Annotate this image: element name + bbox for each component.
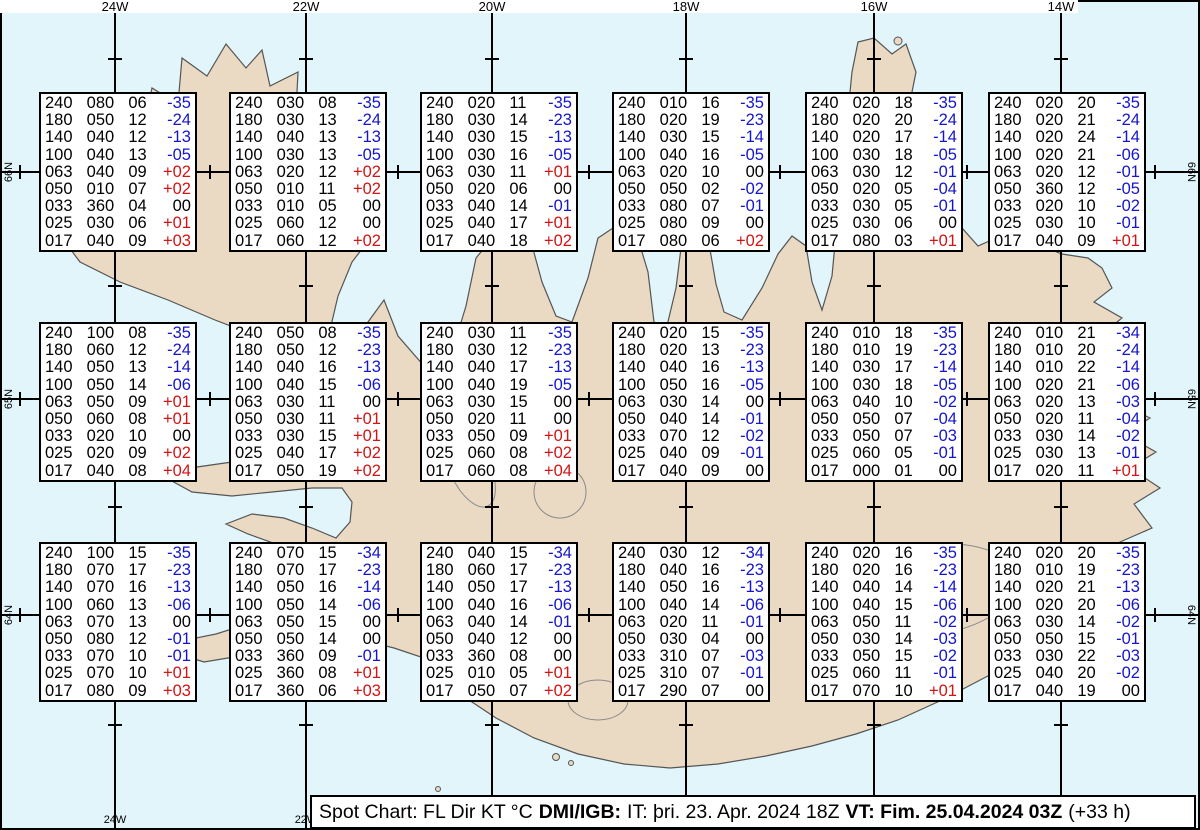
level-row: 18003014-23 xyxy=(426,112,572,129)
flight-level: 180 xyxy=(235,342,266,359)
flight-level: 100 xyxy=(235,597,266,614)
wind-kt: 17 xyxy=(509,579,530,596)
flight-level: 063 xyxy=(426,164,457,181)
wind-kt: 07 xyxy=(701,665,722,682)
temp-c: -01 xyxy=(926,164,957,181)
level-row: 05004014-01 xyxy=(618,411,764,428)
flight-level: 063 xyxy=(235,614,266,631)
flight-level: 025 xyxy=(811,665,842,682)
wind-dir: 050 xyxy=(277,597,308,614)
temp-c: -06 xyxy=(350,377,381,394)
level-row: 02504020-02 xyxy=(994,665,1140,682)
flight-level: 140 xyxy=(618,129,649,146)
level-row: 18007017-23 xyxy=(45,562,191,579)
level-row: 02506005-01 xyxy=(811,445,957,462)
wind-kt: 14 xyxy=(318,631,339,648)
level-row: 06302013-03 xyxy=(994,394,1140,411)
station-box: 24002015-3518002013-2314004016-131000501… xyxy=(612,322,770,482)
level-row: 01705007+02 xyxy=(426,683,572,700)
flight-level: 140 xyxy=(426,579,457,596)
wind-dir: 010 xyxy=(1036,359,1067,376)
wind-kt: 06 xyxy=(894,215,915,232)
level-row: 18005012-24 xyxy=(45,112,191,129)
station-box: 24008006-3518005012-2414004012-131000401… xyxy=(39,92,197,252)
level-row: 06304009+02 xyxy=(45,164,191,181)
temp-c: +02 xyxy=(350,463,381,480)
temp-c: -24 xyxy=(160,342,191,359)
wind-dir: 030 xyxy=(1036,614,1067,631)
level-row: 18002021-24 xyxy=(994,112,1140,129)
level-row: 14004014-14 xyxy=(811,579,957,596)
flight-level: 063 xyxy=(235,394,266,411)
wind-kt: 20 xyxy=(894,112,915,129)
level-row: 24002016-35 xyxy=(811,545,957,562)
level-row: 0170401900 xyxy=(994,683,1140,700)
flight-level: 100 xyxy=(811,377,842,394)
level-row: 10002021-06 xyxy=(994,377,1140,394)
temp-c: -01 xyxy=(733,411,764,428)
lon-label-top-22W: 22W xyxy=(288,0,324,13)
temp-c: -04 xyxy=(1109,411,1140,428)
temp-c: -14 xyxy=(350,579,381,596)
flight-level: 180 xyxy=(811,342,842,359)
footer-org: DMI/IGB: xyxy=(539,801,621,824)
flight-level: 025 xyxy=(426,445,457,462)
wind-kt: 15 xyxy=(318,614,339,631)
flight-level: 100 xyxy=(235,147,266,164)
level-row: 02501005+01 xyxy=(426,665,572,682)
temp-c: -02 xyxy=(733,181,764,198)
level-row: 24002018-35 xyxy=(811,95,957,112)
level-row: 14004016-13 xyxy=(235,359,381,376)
wind-dir: 030 xyxy=(277,394,308,411)
wind-kt: 14 xyxy=(701,394,722,411)
temp-c: +03 xyxy=(160,233,191,250)
wind-kt: 19 xyxy=(894,342,915,359)
wind-dir: 020 xyxy=(1036,394,1067,411)
level-row: 10005014-06 xyxy=(235,597,381,614)
wind-dir: 040 xyxy=(87,129,118,146)
flight-level: 240 xyxy=(45,325,76,342)
wind-kt: 12 xyxy=(128,112,149,129)
flight-level: 240 xyxy=(426,95,457,112)
wind-dir: 040 xyxy=(660,445,691,462)
wind-dir: 080 xyxy=(660,198,691,215)
level-row: 18001019-23 xyxy=(811,342,957,359)
wind-kt: 14 xyxy=(128,377,149,394)
temp-c: -14 xyxy=(1109,129,1140,146)
temp-c: -34 xyxy=(733,545,764,562)
temp-c: -02 xyxy=(926,394,957,411)
wind-kt: 07 xyxy=(894,411,915,428)
wind-dir: 050 xyxy=(853,648,884,665)
flight-level: 017 xyxy=(426,463,457,480)
temp-c: 00 xyxy=(733,394,764,411)
wind-kt: 05 xyxy=(894,181,915,198)
flight-level: 240 xyxy=(811,325,842,342)
wind-dir: 000 xyxy=(853,463,884,480)
flight-level: 025 xyxy=(618,215,649,232)
flight-level: 240 xyxy=(618,325,649,342)
level-row: 02531007-01 xyxy=(618,665,764,682)
lat-label-right-66N: 66N xyxy=(1183,157,1199,187)
wind-dir: 030 xyxy=(660,631,691,648)
level-row: 10003013-05 xyxy=(235,147,381,164)
temp-c: -06 xyxy=(926,597,957,614)
level-row: 05003014-03 xyxy=(811,631,957,648)
wind-kt: 13 xyxy=(701,342,722,359)
wind-kt: 12 xyxy=(701,428,722,445)
wind-dir: 030 xyxy=(468,147,499,164)
flight-level: 050 xyxy=(994,181,1025,198)
wind-dir: 050 xyxy=(468,428,499,445)
level-row: 06303011+01 xyxy=(426,164,572,181)
temp-c: -01 xyxy=(160,631,191,648)
temp-c: -01 xyxy=(733,614,764,631)
wind-dir: 020 xyxy=(853,129,884,146)
wind-dir: 020 xyxy=(660,164,691,181)
temp-c: -01 xyxy=(1109,445,1140,462)
wind-dir: 020 xyxy=(468,181,499,198)
level-row: 0500201100 xyxy=(426,411,572,428)
wind-dir: 070 xyxy=(87,648,118,665)
wind-dir: 310 xyxy=(660,665,691,682)
wind-kt: 09 xyxy=(318,648,339,665)
wind-dir: 050 xyxy=(277,325,308,342)
flight-level: 140 xyxy=(811,579,842,596)
level-row: 24008006-35 xyxy=(45,95,191,112)
station-box: 24001016-3518002019-2314003015-141000401… xyxy=(612,92,770,252)
temp-c: -13 xyxy=(350,359,381,376)
flight-level: 100 xyxy=(618,147,649,164)
flight-level: 025 xyxy=(235,665,266,682)
temp-c: -05 xyxy=(926,147,957,164)
temp-c: -35 xyxy=(733,95,764,112)
temp-c: -14 xyxy=(1109,359,1140,376)
wind-dir: 050 xyxy=(277,614,308,631)
level-row: 06302011-01 xyxy=(618,614,764,631)
wind-dir: 040 xyxy=(660,597,691,614)
temp-c: -13 xyxy=(160,579,191,596)
wind-dir: 040 xyxy=(87,147,118,164)
wind-dir: 310 xyxy=(660,648,691,665)
level-row: 18006017-23 xyxy=(426,562,572,579)
footer-init-time: IT: þri. 23. Apr. 2024 18Z xyxy=(627,801,839,824)
temp-c: -01 xyxy=(350,648,381,665)
wind-dir: 060 xyxy=(277,215,308,232)
wind-kt: 14 xyxy=(509,614,530,631)
temp-c: -34 xyxy=(350,545,381,562)
flight-level: 017 xyxy=(811,233,842,250)
temp-c: -13 xyxy=(733,579,764,596)
temp-c: -35 xyxy=(1109,95,1140,112)
level-row: 0630301100 xyxy=(235,394,381,411)
temp-c: -35 xyxy=(160,325,191,342)
temp-c: +01 xyxy=(350,428,381,445)
wind-dir: 050 xyxy=(277,631,308,648)
level-row: 24003011-35 xyxy=(426,325,572,342)
level-row: 10004015-06 xyxy=(811,597,957,614)
wind-kt: 16 xyxy=(701,579,722,596)
wind-kt: 05 xyxy=(318,198,339,215)
level-row: 24004015-34 xyxy=(426,545,572,562)
flight-level: 140 xyxy=(235,579,266,596)
wind-dir: 030 xyxy=(468,342,499,359)
wind-dir: 010 xyxy=(277,198,308,215)
wind-kt: 08 xyxy=(128,325,149,342)
footer-info-bar: Spot Chart: FL Dir KT °C DMI/IGB: IT: þr… xyxy=(310,795,1196,829)
wind-kt: 09 xyxy=(128,164,149,181)
wind-dir: 050 xyxy=(660,579,691,596)
top-label-strip xyxy=(0,0,1078,13)
temp-c: -23 xyxy=(160,562,191,579)
flight-level: 140 xyxy=(994,359,1025,376)
wind-kt: 17 xyxy=(318,445,339,462)
wind-dir: 080 xyxy=(87,95,118,112)
temp-c: -35 xyxy=(160,545,191,562)
level-row: 03336009-01 xyxy=(235,648,381,665)
level-row: 03305007-03 xyxy=(811,428,957,445)
temp-c: 00 xyxy=(160,614,191,631)
temp-c: -01 xyxy=(926,665,957,682)
flight-level: 140 xyxy=(618,579,649,596)
flight-level: 050 xyxy=(426,631,457,648)
flight-level: 180 xyxy=(426,342,457,359)
level-row: 14005017-13 xyxy=(426,579,572,596)
wind-dir: 360 xyxy=(1036,181,1067,198)
flight-level: 240 xyxy=(45,545,76,562)
temp-c: +01 xyxy=(926,233,957,250)
level-row: 06304014-01 xyxy=(426,614,572,631)
flight-level: 017 xyxy=(994,233,1025,250)
temp-c: 00 xyxy=(926,215,957,232)
wind-kt: 19 xyxy=(701,112,722,129)
temp-c: -23 xyxy=(350,342,381,359)
wind-kt: 18 xyxy=(894,95,915,112)
level-row: 18002013-23 xyxy=(618,342,764,359)
wind-kt: 11 xyxy=(318,181,339,198)
wind-dir: 030 xyxy=(277,112,308,129)
level-row: 18003013-24 xyxy=(235,112,381,129)
wind-kt: 15 xyxy=(318,428,339,445)
wind-kt: 14 xyxy=(318,597,339,614)
wind-dir: 020 xyxy=(87,428,118,445)
temp-c: +01 xyxy=(160,411,191,428)
temp-c: -01 xyxy=(926,198,957,215)
level-row: 05005015-01 xyxy=(994,631,1140,648)
footer-chart-type: Spot Chart: FL Dir KT °C xyxy=(319,801,533,824)
wind-kt: 16 xyxy=(894,562,915,579)
wind-dir: 100 xyxy=(87,545,118,562)
flight-level: 025 xyxy=(811,445,842,462)
wind-kt: 10 xyxy=(1077,215,1098,232)
wind-dir: 030 xyxy=(277,147,308,164)
temp-c: +01 xyxy=(1109,463,1140,480)
level-row: 10005014-06 xyxy=(45,377,191,394)
temp-c: 00 xyxy=(160,198,191,215)
level-row: 0333600400 xyxy=(45,198,191,215)
wind-kt: 10 xyxy=(128,648,149,665)
level-row: 01704018+02 xyxy=(426,233,572,250)
wind-kt: 14 xyxy=(894,579,915,596)
wind-dir: 040 xyxy=(468,597,499,614)
temp-c: +02 xyxy=(541,683,572,700)
flight-level: 180 xyxy=(618,112,649,129)
level-row: 03303022-03 xyxy=(994,648,1140,665)
level-row: 18002016-23 xyxy=(811,562,957,579)
temp-c: -06 xyxy=(160,377,191,394)
temp-c: -06 xyxy=(541,597,572,614)
wind-kt: 13 xyxy=(318,129,339,146)
flight-level: 063 xyxy=(426,614,457,631)
temp-c: -05 xyxy=(541,147,572,164)
flight-level: 033 xyxy=(994,648,1025,665)
flight-level: 033 xyxy=(618,198,649,215)
wind-dir: 010 xyxy=(1036,342,1067,359)
temp-c: -35 xyxy=(926,95,957,112)
wind-dir: 070 xyxy=(853,683,884,700)
wind-dir: 050 xyxy=(277,463,308,480)
level-row: 14005013-14 xyxy=(45,359,191,376)
wind-kt: 09 xyxy=(701,463,722,480)
wind-dir: 020 xyxy=(1036,579,1067,596)
flight-level: 240 xyxy=(235,325,266,342)
wind-dir: 030 xyxy=(660,394,691,411)
temp-c: -03 xyxy=(733,648,764,665)
flight-level: 180 xyxy=(811,562,842,579)
temp-c: -06 xyxy=(350,597,381,614)
wind-kt: 16 xyxy=(509,147,530,164)
wind-kt: 09 xyxy=(509,428,530,445)
temp-c: +01 xyxy=(1109,233,1140,250)
temp-c: -24 xyxy=(350,112,381,129)
wind-kt: 14 xyxy=(509,112,530,129)
wind-kt: 17 xyxy=(128,562,149,579)
flight-level: 033 xyxy=(994,198,1025,215)
wind-kt: 05 xyxy=(509,665,530,682)
level-row: 10004016-06 xyxy=(426,597,572,614)
wind-dir: 040 xyxy=(660,463,691,480)
wind-kt: 14 xyxy=(894,631,915,648)
lat-label-right-65N: 65N xyxy=(1183,384,1199,414)
wind-dir: 030 xyxy=(87,215,118,232)
level-row: 24007015-34 xyxy=(235,545,381,562)
wind-kt: 15 xyxy=(318,545,339,562)
station-box: 24002020-3518001019-2314002021-131000202… xyxy=(988,542,1146,702)
wind-kt: 13 xyxy=(128,147,149,164)
level-row: 10004014-06 xyxy=(618,597,764,614)
level-row: 0630301500 xyxy=(426,394,572,411)
wind-dir: 020 xyxy=(1036,147,1067,164)
flight-level: 033 xyxy=(235,428,266,445)
wind-kt: 08 xyxy=(128,411,149,428)
level-row: 18007017-23 xyxy=(235,562,381,579)
flight-level: 017 xyxy=(235,463,266,480)
wind-dir: 040 xyxy=(853,597,884,614)
wind-dir: 040 xyxy=(468,545,499,562)
wind-kt: 17 xyxy=(509,359,530,376)
wind-dir: 010 xyxy=(1036,325,1067,342)
flight-level: 180 xyxy=(994,562,1025,579)
wind-dir: 050 xyxy=(277,342,308,359)
temp-c: -04 xyxy=(926,411,957,428)
flight-level: 033 xyxy=(45,198,76,215)
flight-level: 050 xyxy=(235,181,266,198)
wind-dir: 020 xyxy=(660,325,691,342)
wind-dir: 050 xyxy=(277,579,308,596)
wind-dir: 010 xyxy=(1036,562,1067,579)
wind-dir: 020 xyxy=(853,545,884,562)
flight-level: 033 xyxy=(426,648,457,665)
flight-level: 050 xyxy=(45,411,76,428)
temp-c: -24 xyxy=(160,112,191,129)
flight-level: 033 xyxy=(45,648,76,665)
temp-c: -01 xyxy=(1109,164,1140,181)
flight-level: 017 xyxy=(45,683,76,700)
temp-c: -34 xyxy=(1109,325,1140,342)
level-row: 05036012-05 xyxy=(994,181,1140,198)
level-row: 24002015-35 xyxy=(618,325,764,342)
wind-dir: 050 xyxy=(660,377,691,394)
wind-kt: 12 xyxy=(128,342,149,359)
wind-kt: 14 xyxy=(701,411,722,428)
temp-c: 00 xyxy=(733,164,764,181)
wind-kt: 12 xyxy=(509,631,530,648)
temp-c: -13 xyxy=(541,359,572,376)
wind-kt: 21 xyxy=(1077,325,1098,342)
map-frame-left xyxy=(0,0,2,830)
level-row: 18001020-24 xyxy=(994,342,1140,359)
flight-level: 240 xyxy=(994,545,1025,562)
wind-dir: 020 xyxy=(660,112,691,129)
wind-dir: 100 xyxy=(87,325,118,342)
temp-c: 00 xyxy=(350,198,381,215)
station-box: 24002011-3518003014-2314003015-131000301… xyxy=(420,92,578,252)
wind-kt: 16 xyxy=(318,579,339,596)
wind-dir: 070 xyxy=(277,545,308,562)
temp-c: -23 xyxy=(733,112,764,129)
wind-dir: 050 xyxy=(468,579,499,596)
flight-level: 025 xyxy=(618,665,649,682)
wind-kt: 08 xyxy=(509,648,530,665)
level-row: 02507010+01 xyxy=(45,665,191,682)
wind-dir: 360 xyxy=(468,648,499,665)
wind-dir: 050 xyxy=(853,428,884,445)
flight-level: 017 xyxy=(45,463,76,480)
wind-dir: 020 xyxy=(853,112,884,129)
flight-level: 100 xyxy=(426,377,457,394)
wind-dir: 020 xyxy=(1036,129,1067,146)
flight-level: 050 xyxy=(618,411,649,428)
wind-dir: 030 xyxy=(853,631,884,648)
wind-kt: 15 xyxy=(509,129,530,146)
temp-c: -23 xyxy=(541,342,572,359)
temp-c: 00 xyxy=(541,411,572,428)
wind-kt: 13 xyxy=(1077,394,1098,411)
wind-kt: 10 xyxy=(1077,198,1098,215)
level-row: 24002020-35 xyxy=(994,95,1140,112)
wind-dir: 040 xyxy=(660,411,691,428)
wind-kt: 10 xyxy=(894,394,915,411)
flight-level: 100 xyxy=(811,597,842,614)
flight-level: 050 xyxy=(811,181,842,198)
level-row: 0250300600 xyxy=(811,215,957,232)
lon-label-top-18W: 18W xyxy=(668,0,704,13)
flight-level: 025 xyxy=(994,215,1025,232)
wind-kt: 17 xyxy=(894,359,915,376)
flight-level: 140 xyxy=(811,129,842,146)
flight-level: 050 xyxy=(235,631,266,648)
